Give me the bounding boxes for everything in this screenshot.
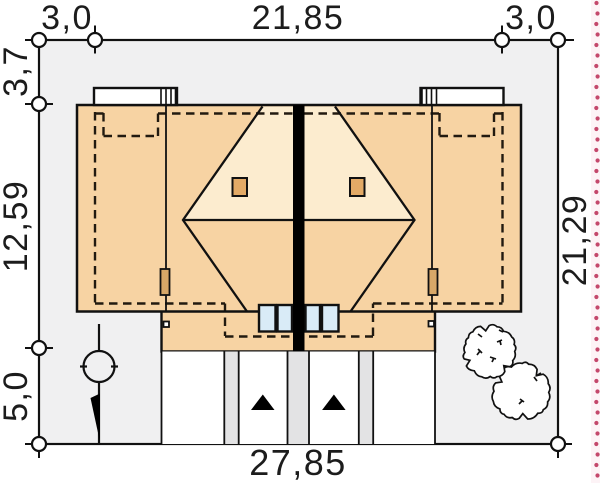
svg-text:3,0: 3,0: [505, 0, 557, 37]
svg-text:5,0: 5,0: [0, 370, 35, 422]
svg-text:3,0: 3,0: [41, 0, 93, 37]
svg-text:3,7: 3,7: [0, 45, 35, 97]
svg-text:21,29: 21,29: [556, 194, 594, 287]
svg-text:21,85: 21,85: [252, 0, 345, 37]
svg-text:27,85: 27,85: [249, 442, 347, 483]
svg-text:12,59: 12,59: [0, 180, 35, 273]
